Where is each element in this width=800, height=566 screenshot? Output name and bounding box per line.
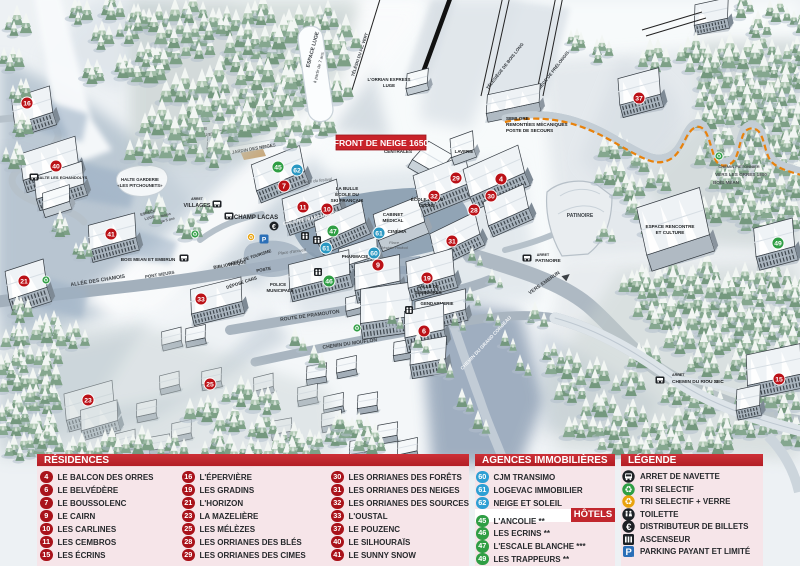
svg-text:MÉDICAL: MÉDICAL	[383, 216, 404, 223]
svg-text:31: 31	[448, 238, 456, 245]
svg-text:P: P	[262, 237, 267, 244]
svg-text:CHEMIN DU RIOU SEC: CHEMIN DU RIOU SEC	[672, 379, 724, 385]
svg-text:BOIS MEAN ET EMBRUN: BOIS MEAN ET EMBRUN	[121, 257, 176, 262]
svg-text:PATINOIRE: PATINOIRE	[535, 258, 561, 264]
svg-text:BOIS MÉAN: BOIS MÉAN	[713, 178, 740, 185]
svg-text:LA BULLE: LA BULLE	[336, 186, 359, 191]
svg-text:49: 49	[774, 240, 782, 247]
svg-text:SEMLORE: SEMLORE	[506, 116, 529, 121]
svg-text:10: 10	[323, 206, 331, 213]
svg-text:♻: ♻	[624, 484, 632, 494]
svg-text:37: 37	[635, 95, 643, 102]
svg-text:LAVERIE: LAVERIE	[455, 149, 474, 154]
svg-text:CHEMIN PIÉTONNIER: CHEMIN PIÉTONNIER	[718, 164, 759, 169]
svg-text:HALTE LES ECHANDOLYS: HALTE LES ECHANDOLYS	[37, 175, 88, 180]
svg-text:CABINET: CABINET	[383, 212, 404, 217]
svg-text:PHARMACIE: PHARMACIE	[342, 254, 369, 259]
svg-text:♻: ♻	[192, 231, 197, 238]
svg-text:POLICE: POLICE	[270, 282, 286, 287]
svg-text:ARRET: ARRET	[537, 253, 550, 257]
svg-text:SALLE DE: SALLE DE	[417, 284, 439, 289]
svg-text:VILLAGES: VILLAGES	[184, 203, 211, 209]
svg-text:61: 61	[375, 230, 383, 237]
svg-text:LUGE: LUGE	[383, 83, 395, 88]
svg-text:«LES PITCHOUNETS»: «LES PITCHOUNETS»	[117, 183, 163, 188]
svg-text:VERS LES ORRES 1800: VERS LES ORRES 1800	[715, 172, 767, 177]
svg-text:FRONT DE NEIGE 1650: FRONT DE NEIGE 1650	[334, 138, 429, 148]
svg-text:PATINOIRE: PATINOIRE	[567, 213, 594, 219]
svg-text:ARRET: ARRET	[191, 197, 204, 201]
svg-text:23: 23	[84, 397, 92, 404]
svg-text:MUNICIPALE: MUNICIPALE	[267, 288, 294, 293]
svg-text:€: €	[626, 522, 632, 533]
svg-text:7: 7	[282, 181, 286, 190]
svg-text:.: .	[632, 553, 633, 558]
svg-text:L'ORRIAN EXPRESS: L'ORRIAN EXPRESS	[367, 77, 410, 82]
svg-text:ÉCOLE DU: ÉCOLE DU	[335, 190, 359, 197]
svg-text:ARRET: ARRET	[672, 373, 685, 377]
svg-text:SÉMINAIRES: SÉMINAIRES	[414, 290, 441, 295]
svg-text:♻: ♻	[43, 277, 48, 284]
svg-text:16: 16	[23, 100, 31, 107]
svg-text:29: 29	[452, 175, 460, 182]
svg-text:15: 15	[775, 376, 783, 383]
svg-text:30: 30	[487, 193, 495, 200]
svg-text:ET CULTURE: ET CULTURE	[656, 230, 685, 235]
svg-text:REMONTÉES MÉCANIQUES: REMONTÉES MÉCANIQUES	[506, 120, 568, 127]
svg-text:9: 9	[376, 260, 380, 269]
svg-text:Désirée Hodoul: Désirée Hodoul	[380, 245, 408, 250]
svg-text:SKI FRANÇAIS: SKI FRANÇAIS	[331, 198, 364, 203]
svg-text:46: 46	[325, 278, 333, 285]
svg-text:♻: ♻	[249, 235, 254, 241]
svg-text:32: 32	[430, 193, 438, 200]
svg-text:25: 25	[206, 381, 214, 388]
svg-text:21: 21	[20, 278, 28, 285]
svg-text:19: 19	[423, 275, 431, 282]
svg-text:4: 4	[499, 174, 503, 183]
svg-text:41: 41	[107, 231, 115, 238]
svg-text:6: 6	[422, 326, 426, 335]
svg-text:62: 62	[293, 167, 301, 174]
svg-text:€: €	[272, 224, 276, 231]
svg-text:CHAMP LACAS: CHAMP LACAS	[234, 215, 278, 221]
svg-text:11: 11	[299, 204, 306, 211]
svg-text:45: 45	[274, 164, 282, 171]
svg-text:28: 28	[470, 207, 478, 214]
svg-text:♻: ♻	[716, 153, 721, 160]
svg-text:47: 47	[329, 228, 337, 235]
svg-text:ESPACE RENCONTRE: ESPACE RENCONTRE	[646, 224, 695, 229]
svg-text:40: 40	[52, 163, 60, 170]
svg-text:♻: ♻	[624, 497, 632, 507]
svg-text:OZONE: OZONE	[419, 203, 435, 208]
svg-text:33: 33	[197, 296, 205, 303]
svg-text:61: 61	[322, 245, 330, 252]
svg-text:POSTE DE SECOURS: POSTE DE SECOURS	[506, 128, 553, 133]
svg-text:HALTE GARDERIE: HALTE GARDERIE	[121, 177, 159, 182]
svg-text:♻: ♻	[354, 325, 359, 332]
svg-text:60: 60	[370, 250, 378, 257]
